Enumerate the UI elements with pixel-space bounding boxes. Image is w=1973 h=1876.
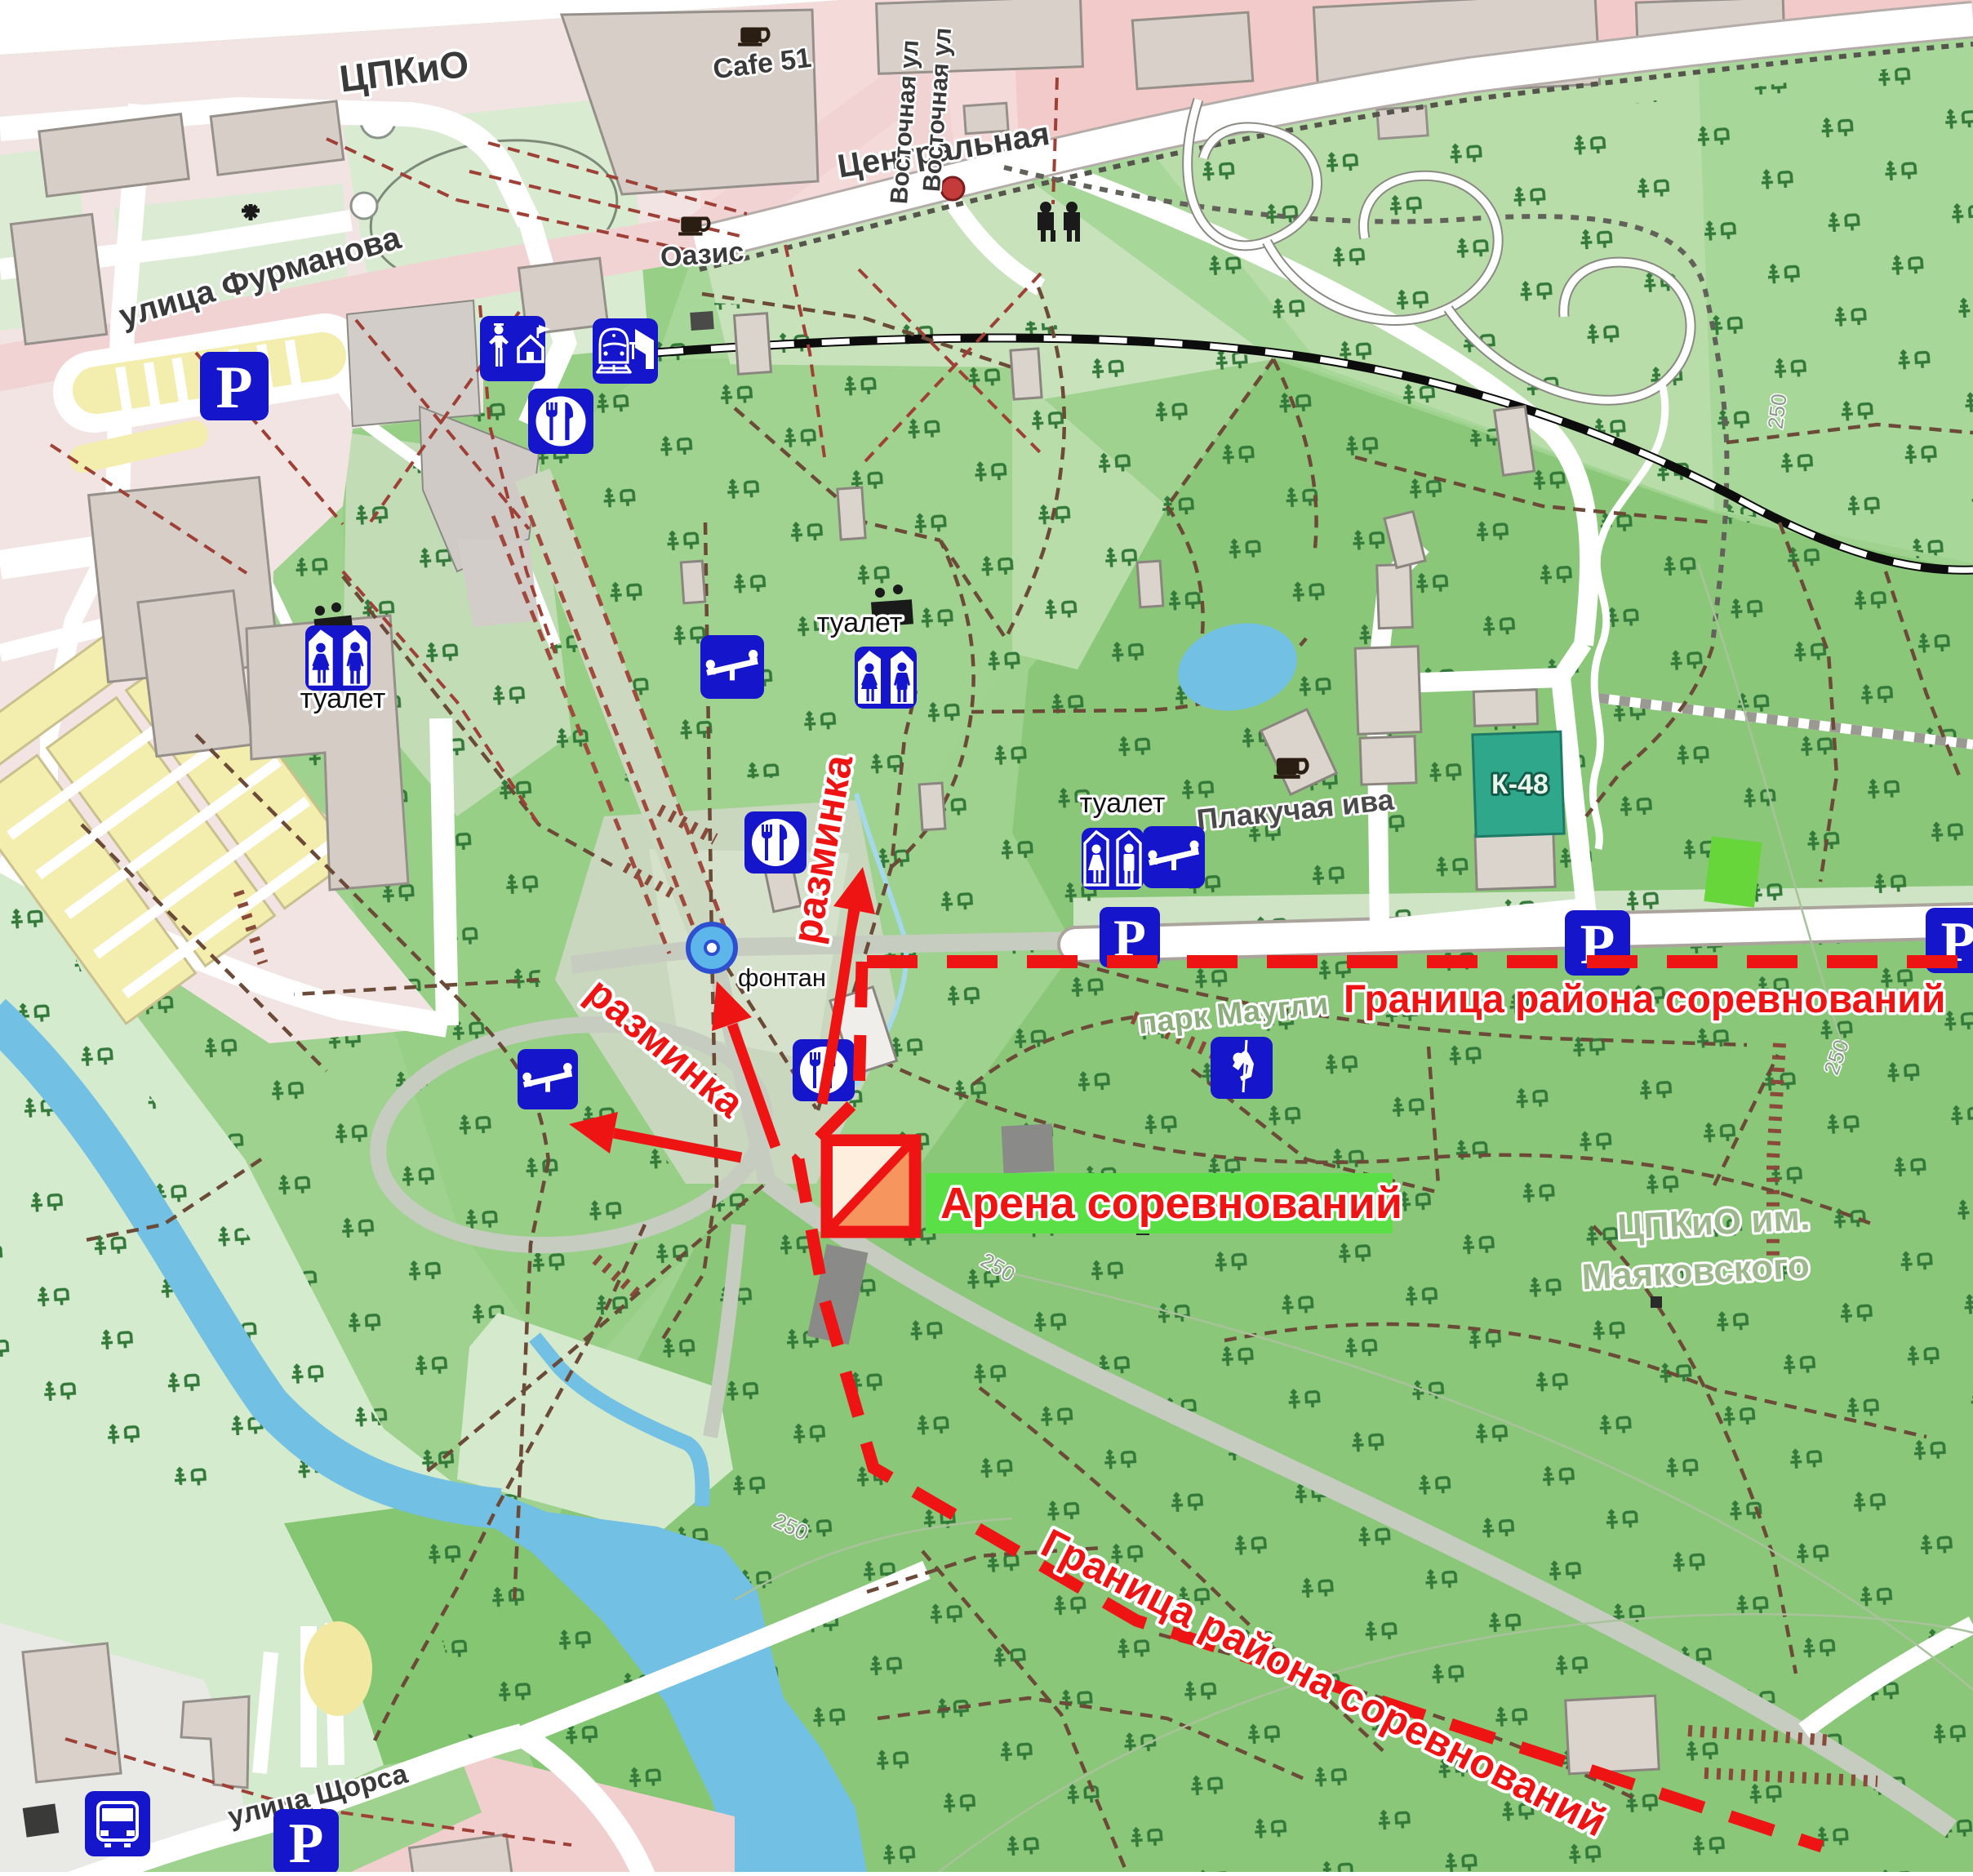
svg-text:P: P: [289, 1812, 324, 1872]
svg-text:туалет: туалет: [1080, 788, 1166, 819]
svg-text:Оазис: Оазис: [660, 236, 745, 273]
svg-text:К-48: К-48: [1491, 769, 1549, 800]
svg-text:туалет: туалет: [817, 607, 903, 638]
svg-text:Граница района соревнований: Граница района соревнований: [1344, 978, 1945, 1021]
svg-text:P: P: [216, 354, 252, 421]
svg-text:Арена соревнований: Арена соревнований: [940, 1179, 1402, 1228]
svg-text:250: 250: [1763, 393, 1792, 431]
svg-text:фонтан: фонтан: [738, 963, 826, 992]
